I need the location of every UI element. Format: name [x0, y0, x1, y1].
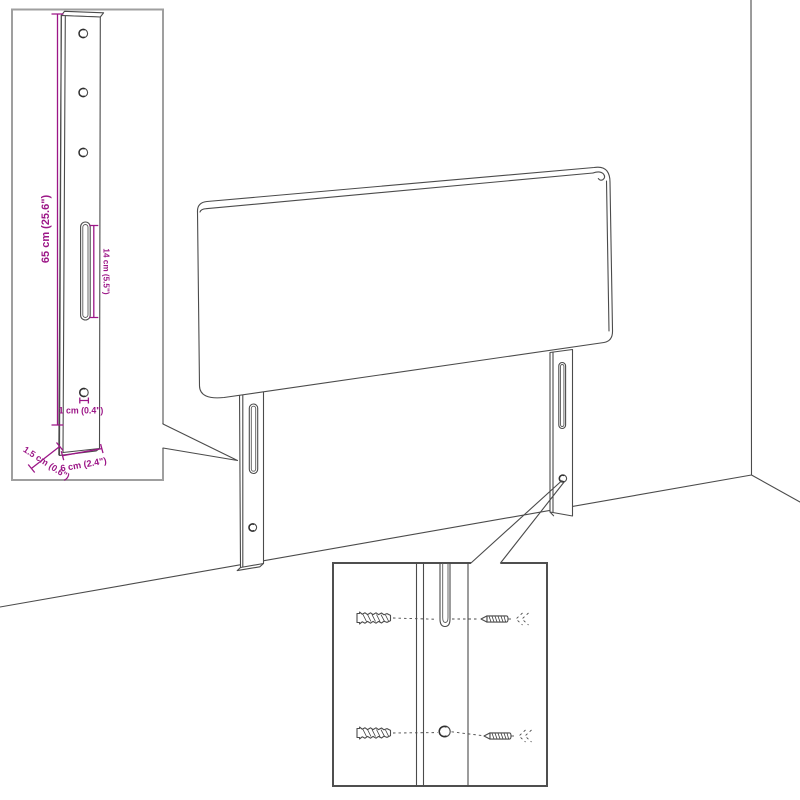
dimension-label-slot-length: 14 cm (5.5"): [102, 248, 111, 294]
inset-callout-lines: [163, 424, 238, 461]
screw-icon: [484, 733, 511, 739]
right-leg: [550, 350, 573, 517]
left-leg-slot: [249, 404, 257, 474]
dimension-label-leg-height: 65 cm (25.6"): [40, 195, 52, 264]
dimension-label-leg-width: 6 cm (2.4"): [60, 456, 108, 474]
headboard-assembly-diagram: 65 cm (25.6") 14 cm (5.5") 1 cm (0.4") 1…: [0, 0, 800, 800]
floor-back-wall-line: [0, 475, 752, 607]
dimension-label-hole-diameter: 1 cm (0.4"): [59, 406, 104, 416]
right-leg-slot: [559, 363, 566, 429]
leg-strip-closeup: [417, 563, 469, 786]
mounting-slot: [81, 222, 91, 320]
leg-closeup: [59, 11, 104, 455]
insert-arrow-icon: [519, 730, 532, 742]
floor-side-wall-line: [752, 475, 800, 502]
mounting-slot: [440, 563, 450, 627]
screw-icon: [481, 616, 508, 622]
left-leg: [237, 387, 263, 571]
wall-corner-line: [751, 0, 752, 475]
insert-arrow-icon: [516, 613, 529, 625]
wall-plug-icon: [357, 612, 391, 624]
mounting-hardware-inset: [333, 481, 565, 787]
wall-plug-icon: [357, 727, 391, 739]
